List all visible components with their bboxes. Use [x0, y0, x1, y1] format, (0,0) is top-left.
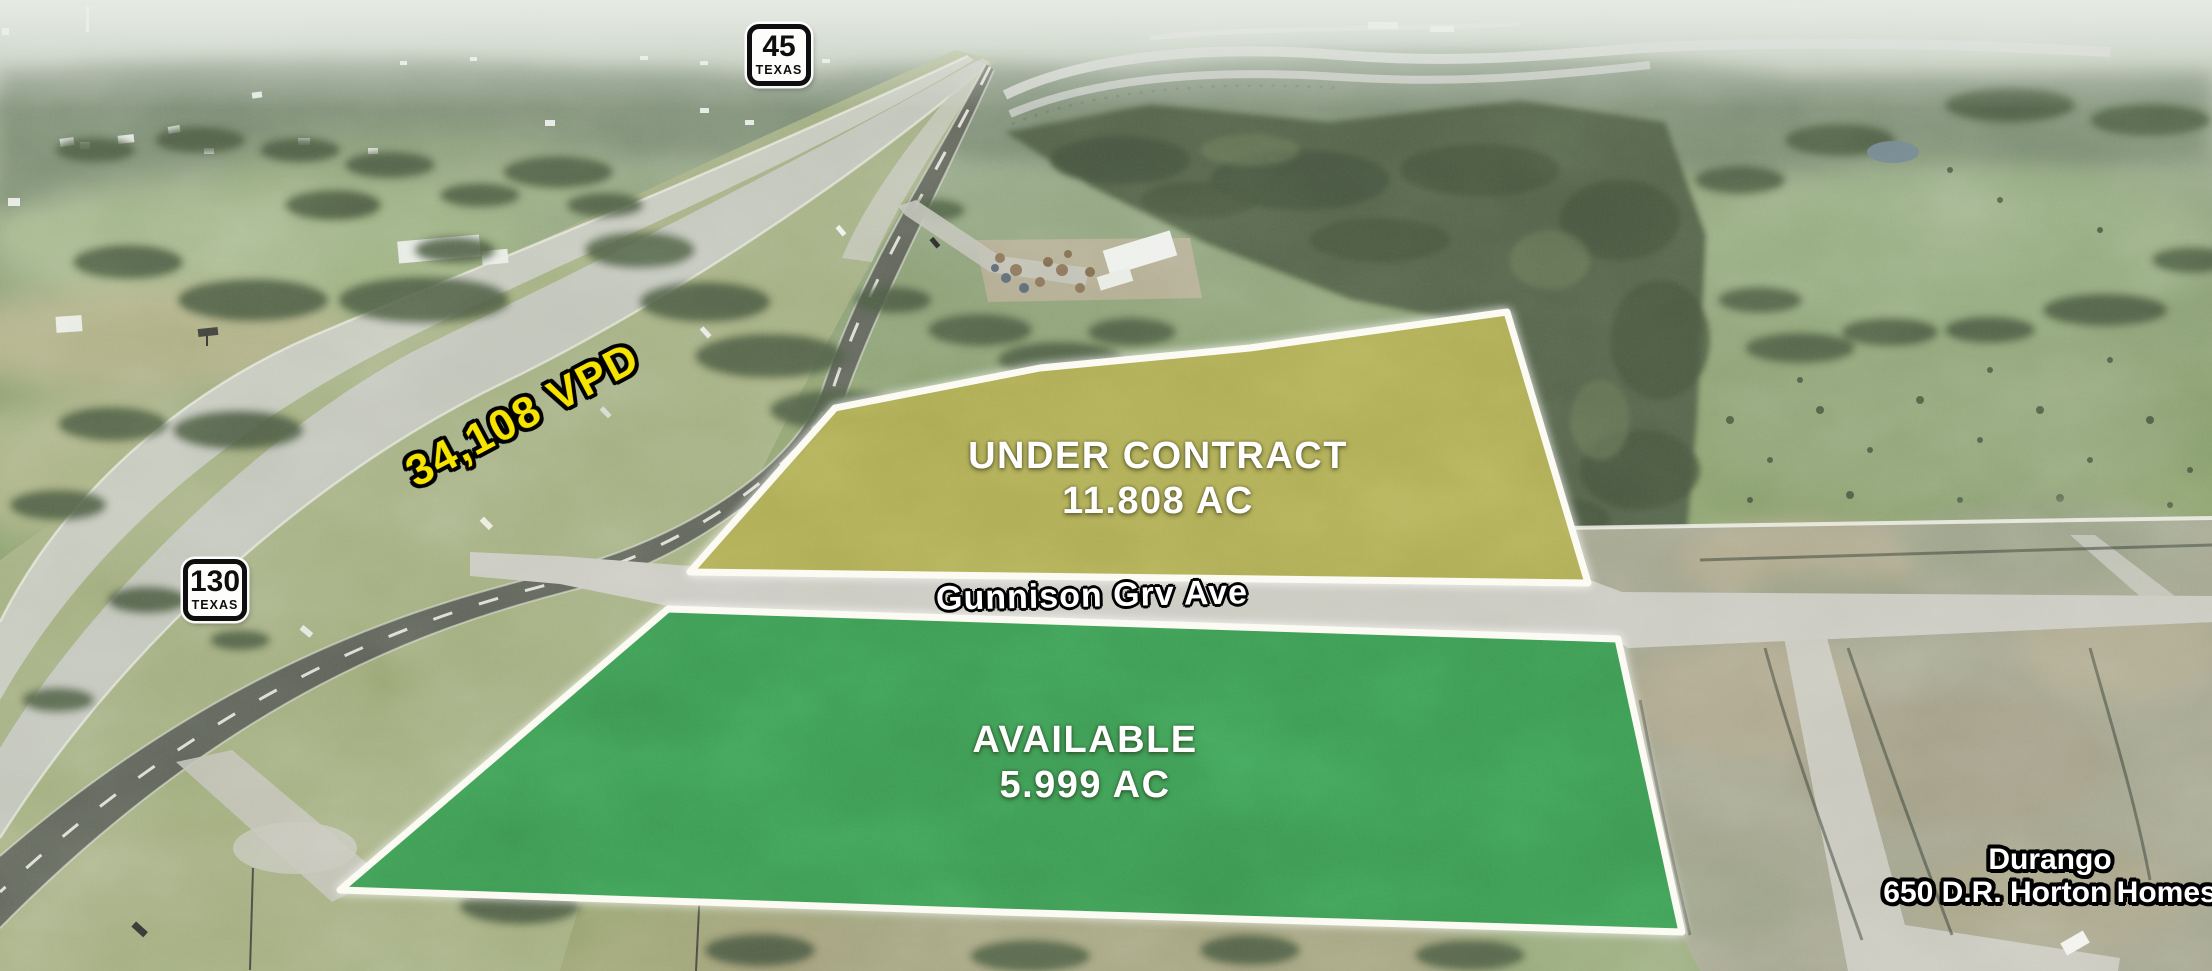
under-contract-label: UNDER CONTRACT 11.808 AC: [968, 434, 1348, 524]
available-status: AVAILABLE: [972, 718, 1197, 763]
aerial-site-photo: 45 TEXAS 130 TEXAS 34,108 VPD UNDER CONT…: [0, 0, 2212, 971]
highway-shield-sh45: 45 TEXAS: [747, 24, 811, 86]
state-label: TEXAS: [752, 63, 806, 77]
development-label: Durango 650 D.R. Horton Homes: [1883, 843, 2212, 909]
route-number: 130: [188, 567, 242, 597]
development-builder: 650 D.R. Horton Homes: [1883, 876, 2212, 909]
available-area: 5.999 AC: [972, 763, 1197, 808]
development-name: Durango: [1883, 843, 2212, 876]
state-label: TEXAS: [188, 598, 242, 612]
street-label-gunnison: Gunnison Grv Ave: [936, 573, 1249, 619]
highway-shield-sh130: 130 TEXAS: [183, 559, 247, 621]
under-contract-status: UNDER CONTRACT: [968, 434, 1348, 479]
route-number: 45: [752, 32, 806, 62]
horizon-haze: [0, 0, 2212, 110]
under-contract-area: 11.808 AC: [968, 479, 1348, 524]
available-label: AVAILABLE 5.999 AC: [972, 718, 1197, 808]
